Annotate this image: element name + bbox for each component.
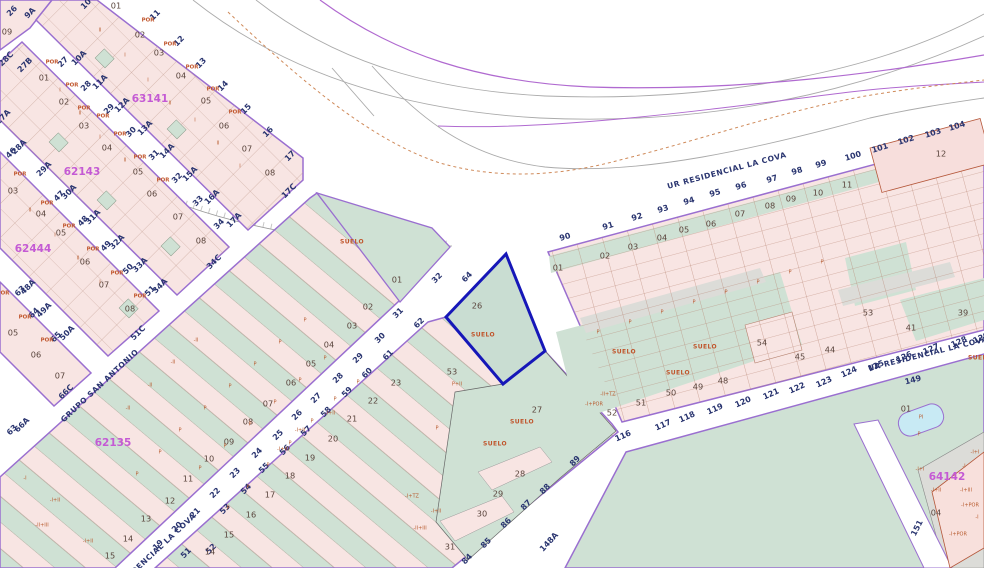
map-label-annotations: P <box>246 485 249 491</box>
map-label-parcel-numbers: 08 <box>125 304 135 314</box>
map-label-por: POR <box>97 114 111 120</box>
map-label-annotations: P <box>333 397 336 403</box>
map-label-parcel-numbers: 04 <box>324 340 334 350</box>
map-label-land-use: SUELO <box>612 349 636 356</box>
map-label-parcel-numbers: 51 <box>636 398 646 408</box>
map-label-parcel-numbers: 01 <box>553 263 563 273</box>
map-label-annotations: -I <box>962 464 965 470</box>
map-label-annotations: P <box>203 406 206 412</box>
map-label-parcel-numbers: 48 <box>718 376 728 386</box>
map-label-annotations: P <box>266 463 269 469</box>
map-label-parcel-numbers: 02 <box>600 251 610 261</box>
map-label-annotations: P <box>692 300 695 306</box>
map-label-parcel-numbers: 03 <box>347 321 357 331</box>
map-label-por: POR <box>134 155 148 161</box>
map-label-parcel-numbers: 08 <box>265 168 275 178</box>
map-label-parcel-numbers: 07 <box>263 399 273 409</box>
map-label-por: POR <box>186 65 200 71</box>
map-label-annotations: II <box>169 101 172 107</box>
map-label-annotations: P <box>273 400 276 406</box>
map-label-parcel-numbers: 20 <box>328 434 338 444</box>
map-label-annotations: P <box>228 384 231 390</box>
map-label-land-use: SUELO <box>483 441 507 448</box>
map-label-annotations: -II <box>194 338 199 344</box>
map-label-annotations: II <box>124 158 127 164</box>
map-label-parcel-numbers: 18 <box>285 471 295 481</box>
map-label-parcel-numbers: 22 <box>368 396 378 406</box>
map-label-annotations: -I+III <box>960 488 972 494</box>
map-label-por: POR <box>87 247 101 253</box>
map-label-por: POR <box>207 87 221 93</box>
map-label-annotations: P <box>278 340 281 346</box>
map-label-parcel-numbers: 04 <box>931 508 941 518</box>
map-label-parcel-numbers: 09 <box>786 194 796 204</box>
map-label-annotations: P <box>660 310 663 316</box>
cadastral-map-svg[interactable]: GRUPO SAN ANTONIOUR RESIDENCIAL LA COVAU… <box>0 0 984 568</box>
map-label-parcel-numbers: 01 <box>901 404 911 414</box>
map-label-por: POR <box>111 271 125 277</box>
map-label-parcel-numbers: 06 <box>706 219 716 229</box>
map-label-parcel-numbers: 02 <box>59 97 69 107</box>
map-label-annotations: P <box>158 450 161 456</box>
map-label-annotations: P <box>226 506 229 512</box>
map-label-por: POR <box>134 294 148 300</box>
map-label-annotations: -I+II <box>431 509 441 515</box>
map-label-annotations: -I <box>23 476 26 482</box>
map-label-por: POR <box>41 201 55 207</box>
map-label-parcel-numbers: 15 <box>105 551 115 561</box>
map-label-parcel-numbers: 10 <box>204 454 214 464</box>
map-label-parcel-numbers: 05 <box>8 328 18 338</box>
map-label-parcel-numbers: 06 <box>80 257 90 267</box>
map-label-parcel-numbers: 17 <box>265 490 275 500</box>
map-label-parcel-numbers: 19 <box>305 453 315 463</box>
map-label-parcel-numbers: 06 <box>31 350 41 360</box>
map-label-por: POR <box>41 338 55 344</box>
map-label-parcel-numbers: 49 <box>693 382 703 392</box>
map-label-annotations: P <box>135 472 138 478</box>
map-label-por: POR <box>114 132 128 138</box>
map-label-annotations: -I+II <box>50 498 60 504</box>
map-label-parcel-numbers: 07 <box>735 209 745 219</box>
map-label-annotations: P <box>253 362 256 368</box>
map-label-parcel-numbers: 52 <box>607 408 617 418</box>
map-label-parcel-numbers: 28 <box>515 469 525 479</box>
map-label-parcel-numbers: 01 <box>392 275 402 285</box>
map-label-parcel-numbers: 31 <box>445 542 455 552</box>
map-label-annotations: -I+POR <box>585 402 603 408</box>
map-label-land-use: SUELO <box>666 370 690 377</box>
map-label-por: POR <box>66 83 80 89</box>
map-label-parcel-numbers: 07 <box>55 371 65 381</box>
map-label-parcel-numbers: 21 <box>347 414 357 424</box>
map-label-parcel-numbers: 12 <box>936 149 946 159</box>
map-label-parcel-numbers: 23 <box>391 378 401 388</box>
map-label-land-use: SUELO <box>471 332 495 339</box>
map-label-parcel-numbers: 11 <box>842 180 852 190</box>
map-label-parcel-numbers: 29 <box>493 489 503 499</box>
map-label-parcel-numbers: 39 <box>958 308 968 318</box>
map-label-block-codes: 62444 <box>15 243 52 255</box>
map-label-parcel-numbers: 03 <box>79 121 89 131</box>
map-label-annotations: -II <box>126 406 131 412</box>
map-label-parcel-numbers: 08 <box>196 236 206 246</box>
map-label-annotations: P <box>178 428 181 434</box>
map-label-parcel-numbers: 04 <box>657 233 667 243</box>
map-label-annotations: P <box>628 320 631 326</box>
map-label-annotations: II <box>99 28 102 34</box>
map-label-annotations: P <box>756 280 759 286</box>
map-label-por: POR <box>19 315 33 321</box>
map-label-parcel-numbers: 44 <box>825 345 835 355</box>
map-label-parcel-numbers: 15 <box>224 530 234 540</box>
map-label-block-codes: 62135 <box>95 437 132 449</box>
map-label-parcel-numbers: 03 <box>8 186 18 196</box>
map-label-annotations: P <box>248 422 251 428</box>
map-label-annotations: II <box>79 111 82 117</box>
map-label-annotations: -I <box>975 515 978 521</box>
map-label-parcel-numbers: 16 <box>246 510 256 520</box>
map-label-annotations: I <box>54 233 55 239</box>
map-label-block-codes: 64142 <box>929 471 966 483</box>
map-label-parcel-numbers: 12 <box>165 496 175 506</box>
map-label-parcel-numbers: 14 <box>205 547 215 557</box>
map-label-block-codes: 62143 <box>64 166 101 178</box>
map-label-annotations: -II <box>171 360 176 366</box>
map-label-land-use: SUELO <box>693 344 717 351</box>
map-label-parcel-numbers: 27 <box>532 405 542 415</box>
map-label-por: POR <box>157 178 171 184</box>
map-label-annotations: -I+III <box>277 447 289 453</box>
map-label-parcel-numbers: 04 <box>102 143 112 153</box>
map-label-annotations: -II+TZ <box>600 392 616 398</box>
map-label-annotations: -I+POR <box>949 532 967 538</box>
map-label-parcel-numbers: 41 <box>906 323 916 333</box>
map-label-parcel-numbers: 05 <box>306 359 316 369</box>
map-label-parcel-numbers: 30 <box>477 509 487 519</box>
map-label-parcel-numbers: 14 <box>123 534 133 544</box>
map-label-annotations: II <box>29 208 32 214</box>
map-label-annotations: -I+POR <box>961 503 979 509</box>
map-label-parcel-numbers: 06 <box>147 189 157 199</box>
map-label-por: POR <box>164 42 178 48</box>
map-label-annotations: I <box>194 118 195 124</box>
map-label-parcel-numbers: 08 <box>765 201 775 211</box>
map-label-annotations: -I+I <box>971 450 980 456</box>
map-label-parcel-numbers: 06 <box>286 378 296 388</box>
map-label-parcel-numbers: 02 <box>135 30 145 40</box>
cadastral-map[interactable]: GRUPO SAN ANTONIOUR RESIDENCIAL LA COVAU… <box>0 0 984 568</box>
map-label-annotations: P <box>310 419 313 425</box>
map-label-por: POR <box>63 224 77 230</box>
map-label-parcel-numbers: 50 <box>666 388 676 398</box>
map-label-annotations: -I+II <box>295 428 305 434</box>
map-label-parcel-numbers: 06 <box>219 121 229 131</box>
map-label-parcel-numbers: 07 <box>173 212 183 222</box>
map-label-annotations: P <box>596 330 599 336</box>
map-label-parcel-numbers: 26 <box>472 301 482 311</box>
map-label-parcel-numbers: 11 <box>183 474 193 484</box>
map-label-por: POR <box>229 110 243 116</box>
map-label-land-use: SUELO <box>968 355 984 362</box>
map-label-block-codes: 63141 <box>132 93 169 105</box>
map-label-annotations: P <box>356 380 359 386</box>
map-label-annotations: -II+III <box>413 526 426 532</box>
map-label-annotations: P <box>435 426 438 432</box>
map-label-annotations: I <box>99 280 100 286</box>
map-label-annotations: I <box>239 164 240 170</box>
map-label-parcel-numbers: 01 <box>39 73 49 83</box>
map-label-parcel-numbers: 07 <box>242 144 252 154</box>
map-label-land-use: SUELO <box>340 239 364 246</box>
map-label-parcel-numbers: 05 <box>679 225 689 235</box>
map-label-annotations: P <box>223 444 226 450</box>
map-label-annotations: P <box>198 466 201 472</box>
map-label-parcel-numbers: 05 <box>201 96 211 106</box>
map-label-parcel-numbers: 54 <box>757 338 767 348</box>
map-label-annotations: I <box>99 135 100 141</box>
map-label-parcel-numbers: 04 <box>176 71 186 81</box>
map-label-parcel-numbers: 05 <box>133 167 143 177</box>
map-label-por: POR <box>46 60 60 66</box>
map-label-annotations: II <box>217 141 220 147</box>
map-label-por: POR <box>0 291 10 297</box>
map-label-annotations: -I+II <box>931 488 941 494</box>
map-label-por: POR <box>142 18 156 24</box>
map-label-annotations: I <box>124 53 125 59</box>
map-label-parcel-numbers: 03 <box>628 242 638 252</box>
map-label-annotations: P <box>323 356 326 362</box>
map-label-annotations: P <box>724 290 727 296</box>
map-label-parcel-numbers: 02 <box>363 302 373 312</box>
map-label-parcel-numbers: 04 <box>36 209 46 219</box>
map-label-annotations: -II+III <box>35 523 48 529</box>
map-label-annotations: P <box>298 378 301 384</box>
map-label-parcel-numbers: 03 <box>154 48 164 58</box>
map-label-annotations: P+II <box>452 382 462 388</box>
map-label-land-use: SUELO <box>510 419 534 426</box>
map-label-annotations: P <box>788 270 791 276</box>
map-label-annotations: -I+II <box>325 411 335 417</box>
map-label-parcel-numbers: 45 <box>795 352 805 362</box>
map-label-annotations: I <box>147 78 148 84</box>
map-label-annotations: -I+II <box>83 539 93 545</box>
map-label-parcel-numbers: 01 <box>111 1 121 11</box>
map-label-parcel-numbers: 13 <box>141 514 151 524</box>
map-label-parcel-numbers: 53 <box>447 367 457 377</box>
map-label-parcel-numbers: 09 <box>2 27 12 37</box>
map-label-por: POR <box>14 172 28 178</box>
map-label-annotations: -I+TZ <box>405 494 420 500</box>
map-label-annotations: -II <box>148 383 153 389</box>
map-label-annotations: PI <box>919 415 924 421</box>
map-label-annotations: P <box>917 432 920 438</box>
map-label-annotations: II <box>77 256 80 262</box>
map-label-annotations: P <box>820 260 823 266</box>
map-label-parcel-numbers: 53 <box>863 308 873 318</box>
map-label-annotations: I <box>59 88 60 94</box>
map-label-annotations: P <box>303 318 306 324</box>
map-label-parcel-numbers: 10 <box>813 188 823 198</box>
map-label-annotations: -I+I <box>916 467 925 473</box>
